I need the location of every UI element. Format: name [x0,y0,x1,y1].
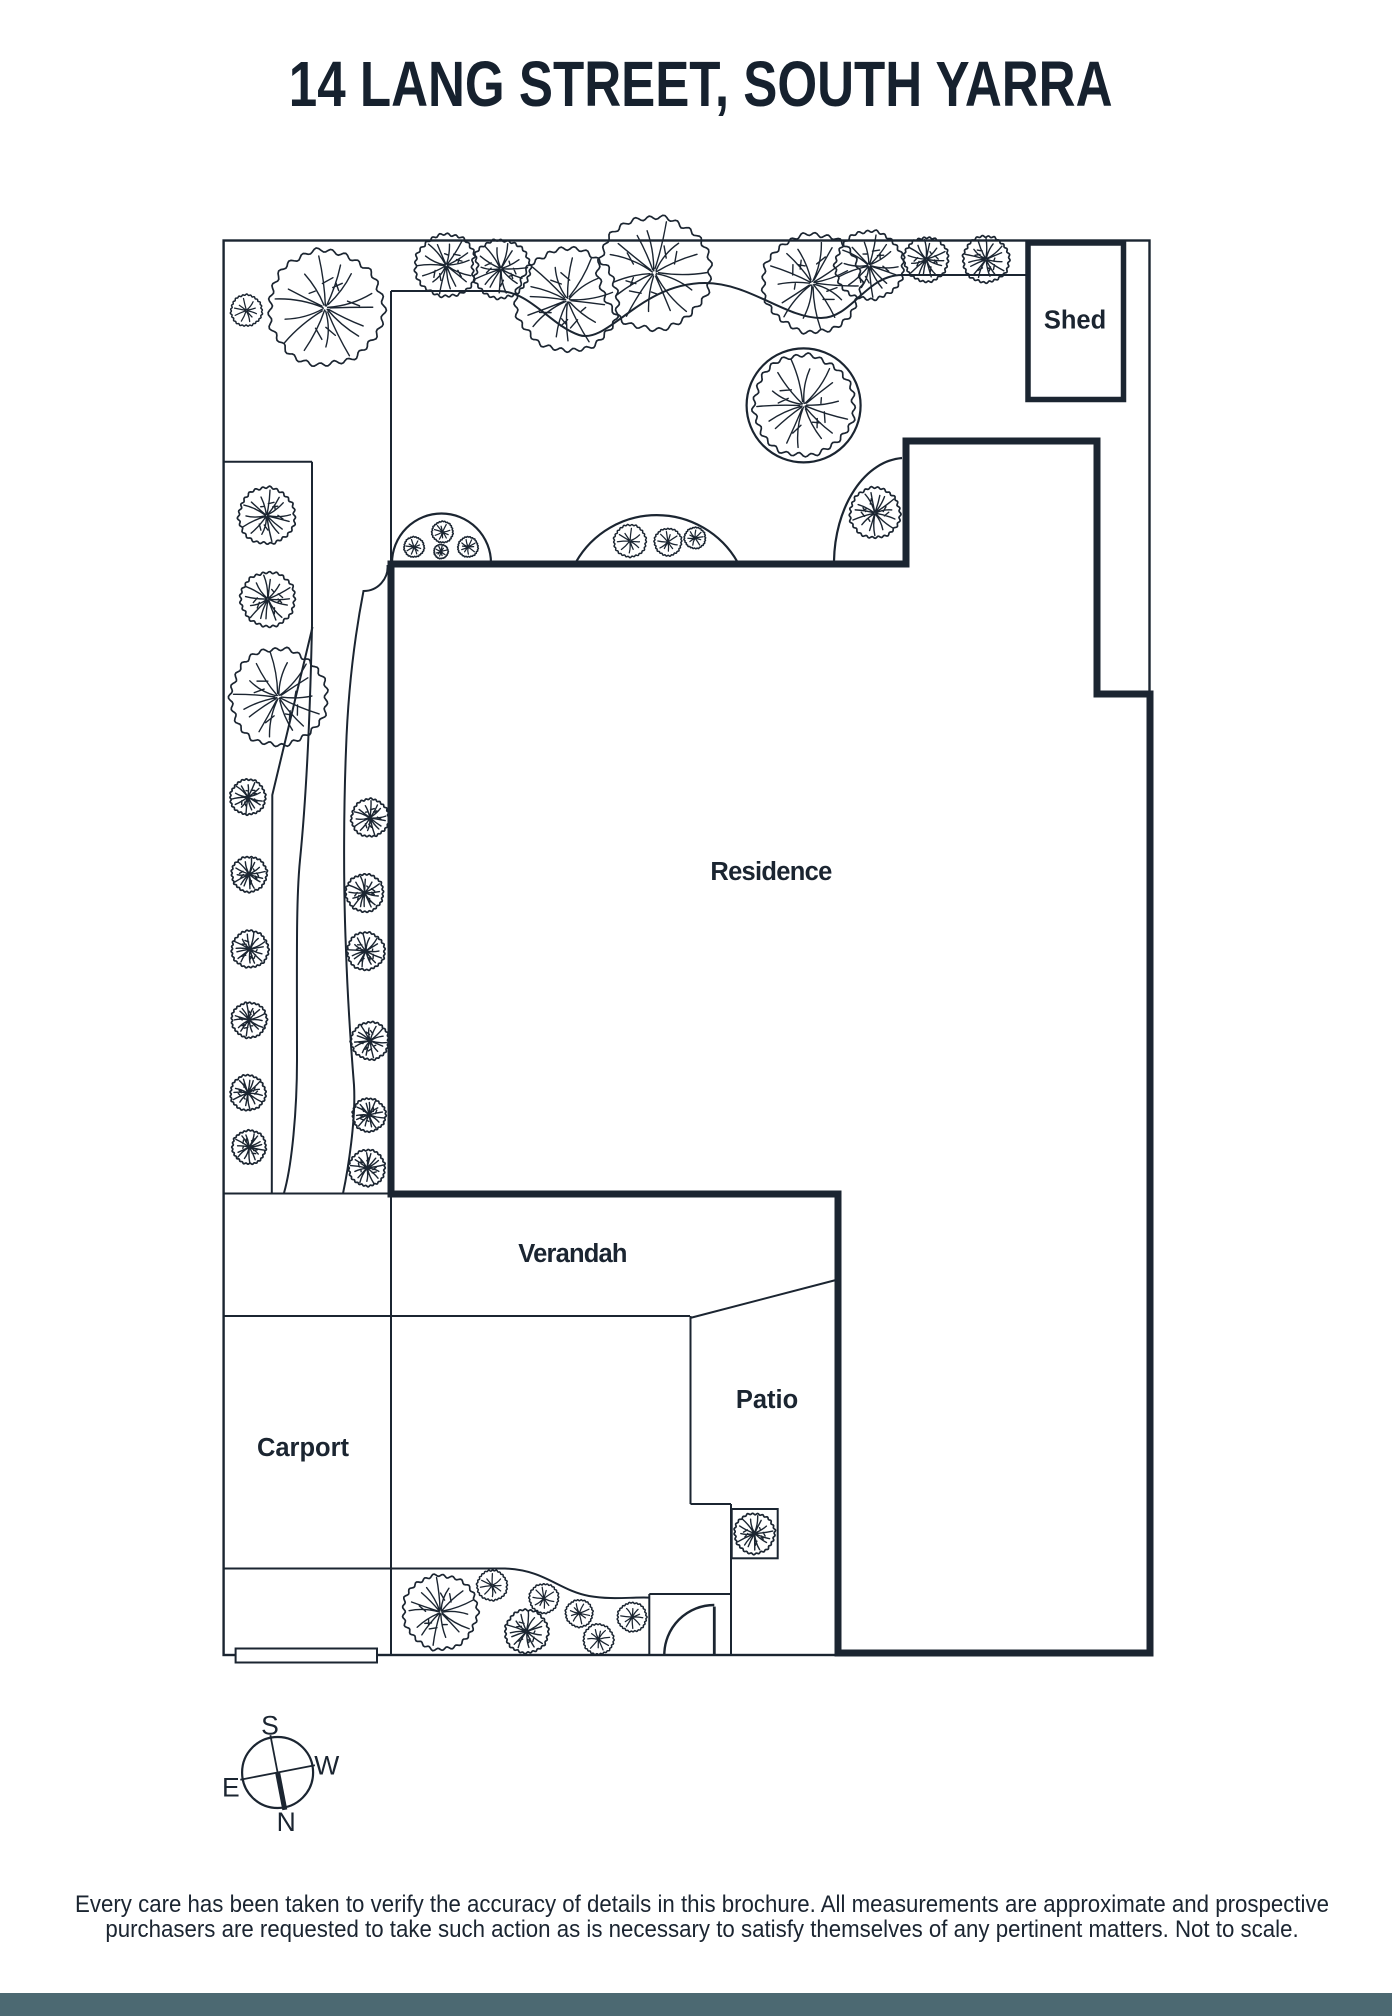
svg-text:Carport: Carport [257,1434,350,1462]
svg-text:Patio: Patio [736,1386,798,1414]
svg-text:Residence: Residence [710,858,832,886]
svg-text:Verandah: Verandah [518,1240,626,1268]
svg-text:E: E [222,1773,240,1803]
svg-text:Shed: Shed [1044,307,1106,335]
svg-text:W: W [314,1751,339,1781]
svg-text:N: N [277,1807,296,1837]
svg-text:S: S [261,1711,279,1741]
